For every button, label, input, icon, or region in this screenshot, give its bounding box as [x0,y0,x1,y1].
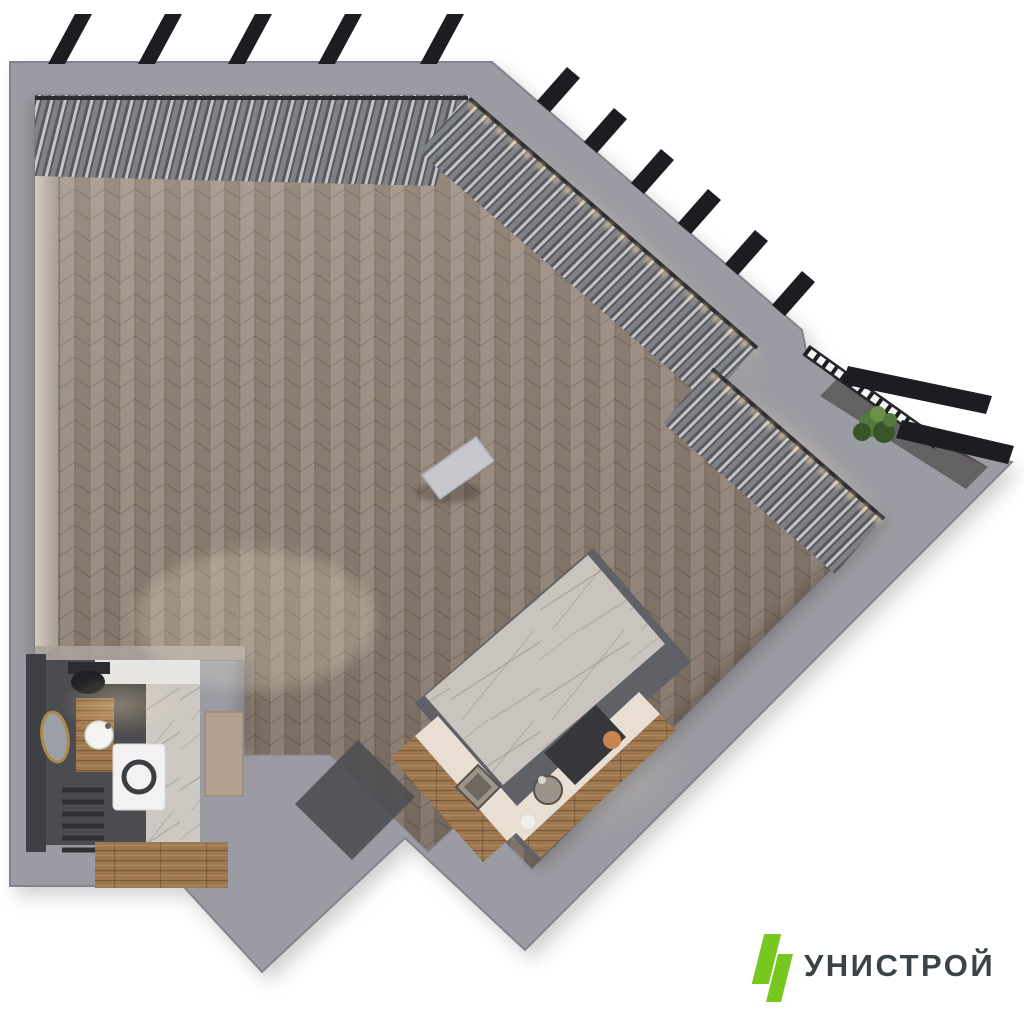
brand-logo: УНИСТРОЙ [748,926,995,1010]
brand-name: УНИСТРОЙ [804,948,995,984]
plan-svg [0,0,1024,1024]
sun-fin [678,189,721,234]
bathroom-door [205,712,243,796]
sun-fin [48,14,92,64]
sun-fin [228,14,272,64]
kitchen-kettle [521,815,535,829]
bathroom-glow [60,675,180,735]
sun-fin [318,14,362,64]
curtain-band-top [35,95,468,186]
kitchen-faucet [538,776,546,784]
sun-fin [725,230,768,275]
sun-fin [138,14,182,64]
floorplan-render: УНИСТРОЙ [0,0,1024,1024]
kitchen-bowl [603,731,621,749]
left-wall-face [35,95,58,660]
sun-fin [631,149,674,194]
unistroy-logo-icon [748,932,792,1004]
sun-fin [420,14,464,64]
sun-fin [584,108,627,153]
bathroom-left-wall [26,654,46,852]
washing-machine [113,744,165,810]
hallway-wood-floor [95,842,228,888]
sun-fin [772,271,815,316]
sun-fins-top [48,14,464,64]
sun-fin [537,67,580,112]
